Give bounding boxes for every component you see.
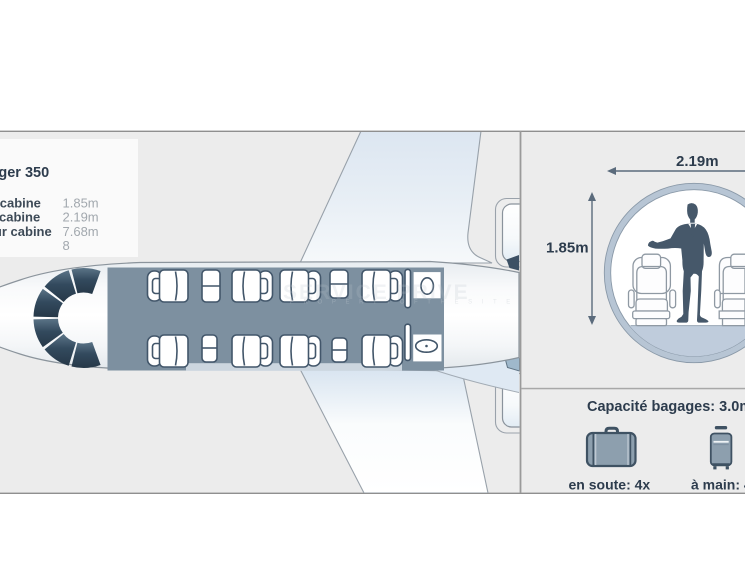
svg-text:2.19m: 2.19m xyxy=(676,153,719,170)
svg-text:Largeur cabine: Largeur cabine xyxy=(0,210,40,225)
svg-text:1.85m: 1.85m xyxy=(63,196,99,211)
svg-text:7.68m: 7.68m xyxy=(63,224,99,239)
svg-text:2.19m: 2.19m xyxy=(63,210,99,225)
svg-text:8: 8 xyxy=(63,238,70,253)
svg-text:Longueur cabine: Longueur cabine xyxy=(0,224,52,239)
svg-text:P R O P E R T Y O F T H E S: P R O P E R T Y O F T H E S I T E xyxy=(290,300,514,306)
svg-text:Challenger 350: Challenger 350 xyxy=(0,165,49,181)
svg-text:1.85m: 1.85m xyxy=(546,240,589,257)
svg-text:à main: 4x: à main: 4x xyxy=(691,477,745,493)
svg-text:en soute: 4x: en soute: 4x xyxy=(569,477,651,493)
svg-text:Capacité bagages: 3.0m³: Capacité bagages: 3.0m³ xyxy=(587,399,745,415)
svg-text:Hauteur cabine: Hauteur cabine xyxy=(0,196,41,211)
